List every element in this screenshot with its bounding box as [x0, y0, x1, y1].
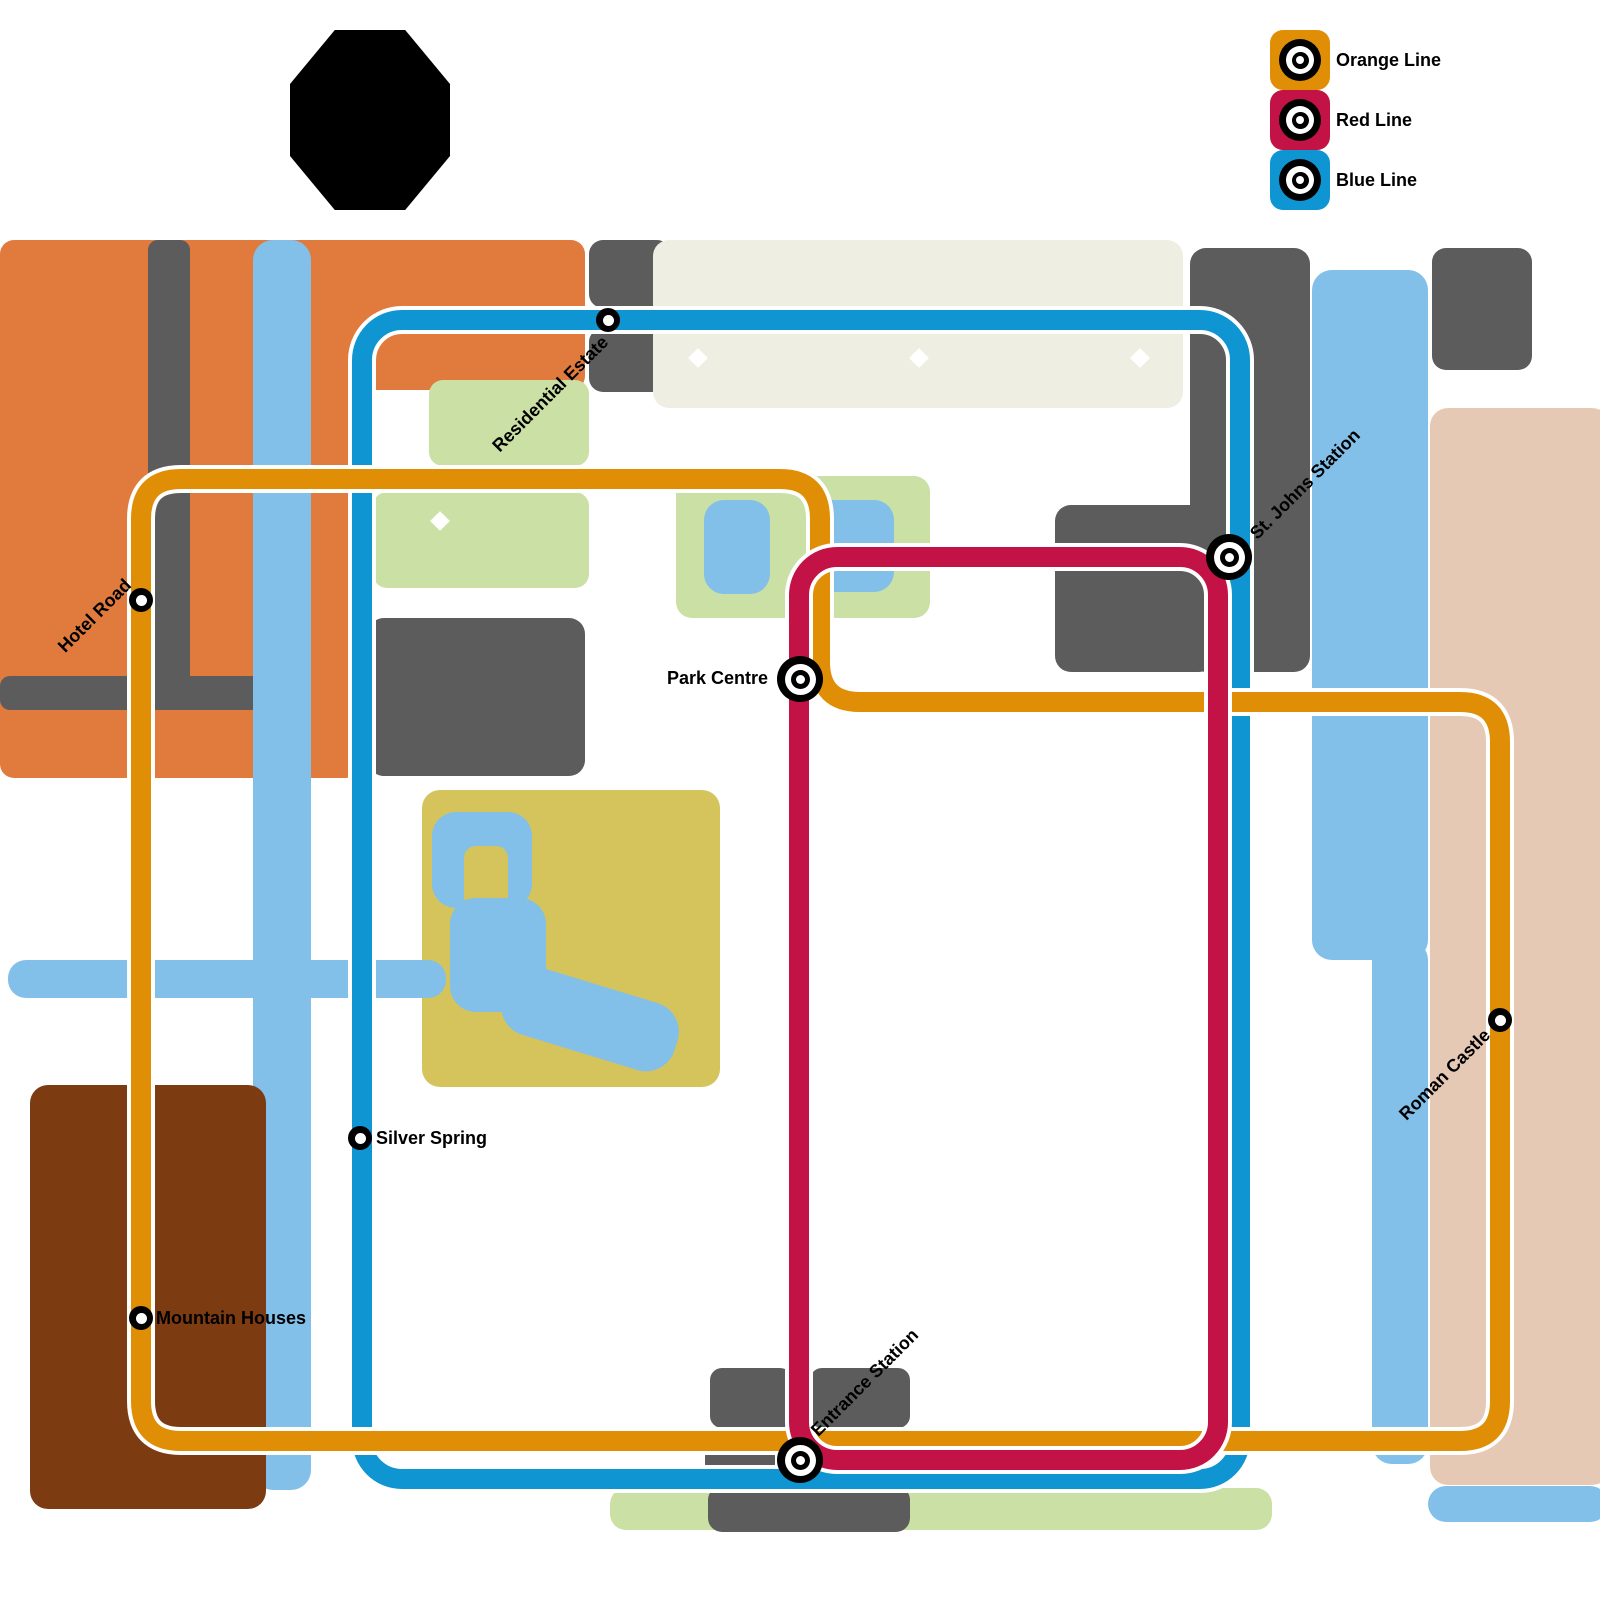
legend-row-orange: Orange Line [1270, 30, 1570, 90]
station-marker-silver-spring[interactable] [348, 1126, 372, 1150]
castle-district [1430, 408, 1600, 1485]
octagon-landmark [290, 30, 450, 210]
building-block [705, 1448, 775, 1472]
station-marker-st-johns-station[interactable] [1206, 534, 1252, 580]
river [1312, 270, 1428, 960]
red-line-path [799, 557, 1218, 1460]
legend-line-icon [1270, 30, 1330, 90]
station-marker-mountain-houses[interactable] [129, 1306, 153, 1330]
station-bullseye-icon [1279, 39, 1321, 81]
station-marker-residential-estate[interactable] [596, 308, 620, 332]
legend-label: Orange Line [1336, 30, 1441, 90]
building-block [708, 1486, 910, 1532]
station-marker-park-centre[interactable] [777, 656, 823, 702]
legend-label: Blue Line [1336, 150, 1417, 210]
river [1372, 940, 1428, 1464]
river [1428, 1486, 1600, 1522]
building-block [1432, 248, 1532, 370]
legend: Orange LineRed LineBlue Line [1270, 30, 1570, 210]
building-block [368, 618, 585, 776]
park-block [373, 492, 589, 588]
legend-line-icon [1270, 90, 1330, 150]
river [8, 960, 446, 998]
red-line-casing [799, 557, 1218, 1460]
legend-row-blue: Blue Line [1270, 150, 1570, 210]
station-bullseye-icon [1279, 159, 1321, 201]
school-zone [653, 240, 1183, 408]
station-label-park-centre: Park Centre [667, 667, 768, 689]
legend-label: Red Line [1336, 90, 1412, 150]
pond [810, 500, 894, 592]
building-block [0, 676, 287, 710]
legend-line-icon [1270, 150, 1330, 210]
station-label-mountain-houses: Mountain Houses [156, 1307, 306, 1329]
building-block [148, 240, 190, 710]
transit-map: Residential EstateHotel RoadSt. Johns St… [0, 0, 1600, 1600]
station-marker-entrance-station[interactable] [777, 1437, 823, 1483]
legend-row-red: Red Line [1270, 90, 1570, 150]
station-label-silver-spring: Silver Spring [376, 1127, 487, 1149]
station-marker-roman-castle[interactable] [1488, 1008, 1512, 1032]
mountain-district [30, 1085, 266, 1509]
building-block [1055, 505, 1215, 672]
building-block [710, 1368, 792, 1428]
pond [704, 500, 770, 594]
station-bullseye-icon [1279, 99, 1321, 141]
